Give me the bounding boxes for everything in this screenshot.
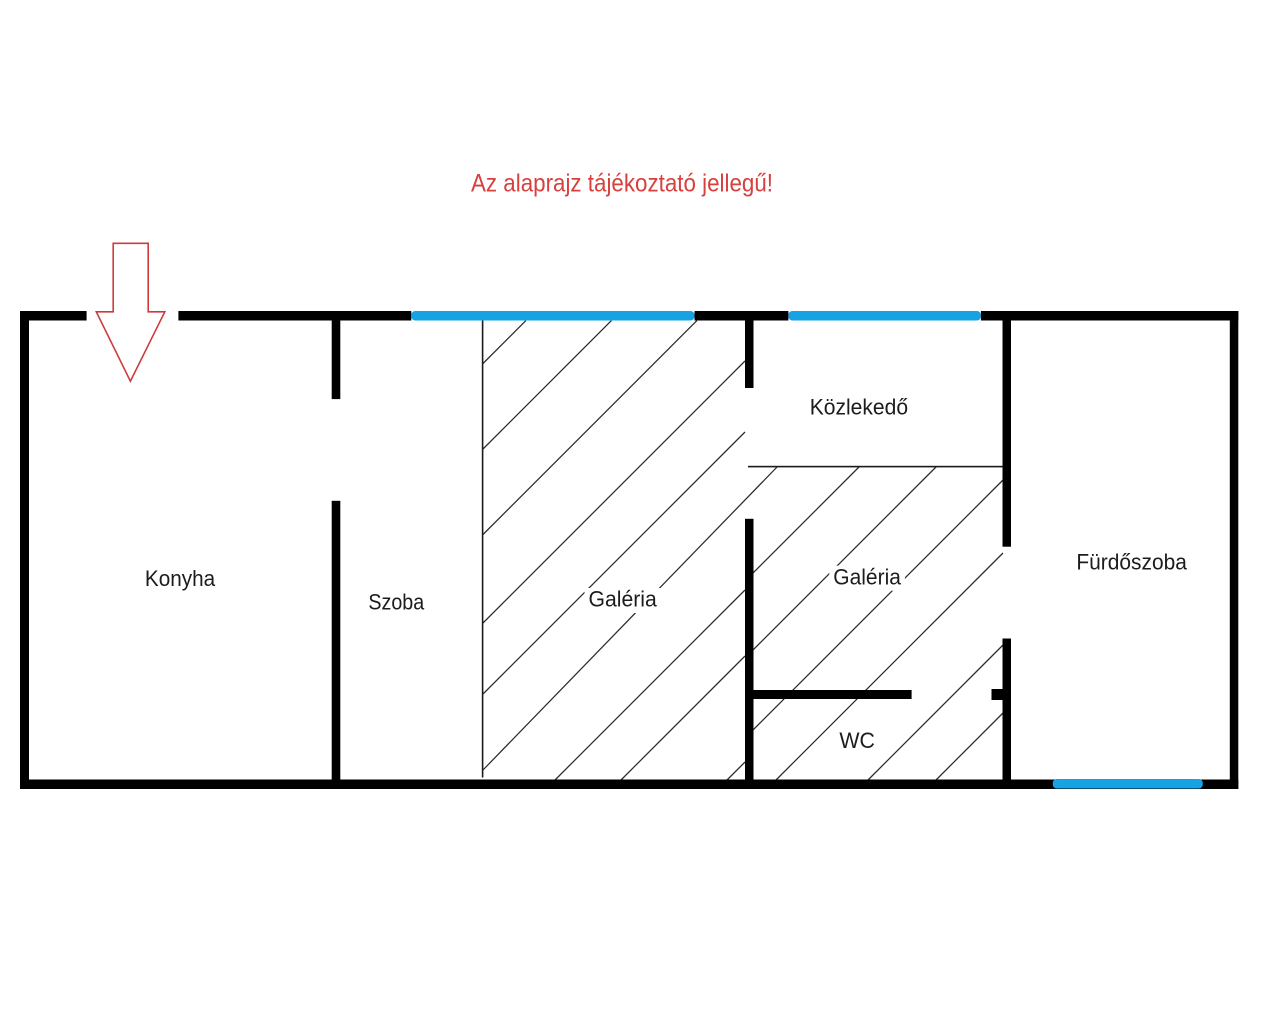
svg-text:Az alaprajz tájékoztató jelleg: Az alaprajz tájékoztató jellegű!: [471, 170, 773, 198]
svg-text:Fürdőszoba: Fürdőszoba: [1076, 550, 1187, 575]
svg-text:Galéria: Galéria: [589, 587, 658, 612]
svg-text:Közlekedő: Közlekedő: [810, 395, 908, 420]
svg-text:Konyha: Konyha: [145, 566, 216, 591]
svg-text:WC: WC: [839, 728, 875, 753]
svg-text:Szoba: Szoba: [368, 590, 424, 615]
svg-text:Galéria: Galéria: [833, 564, 901, 589]
